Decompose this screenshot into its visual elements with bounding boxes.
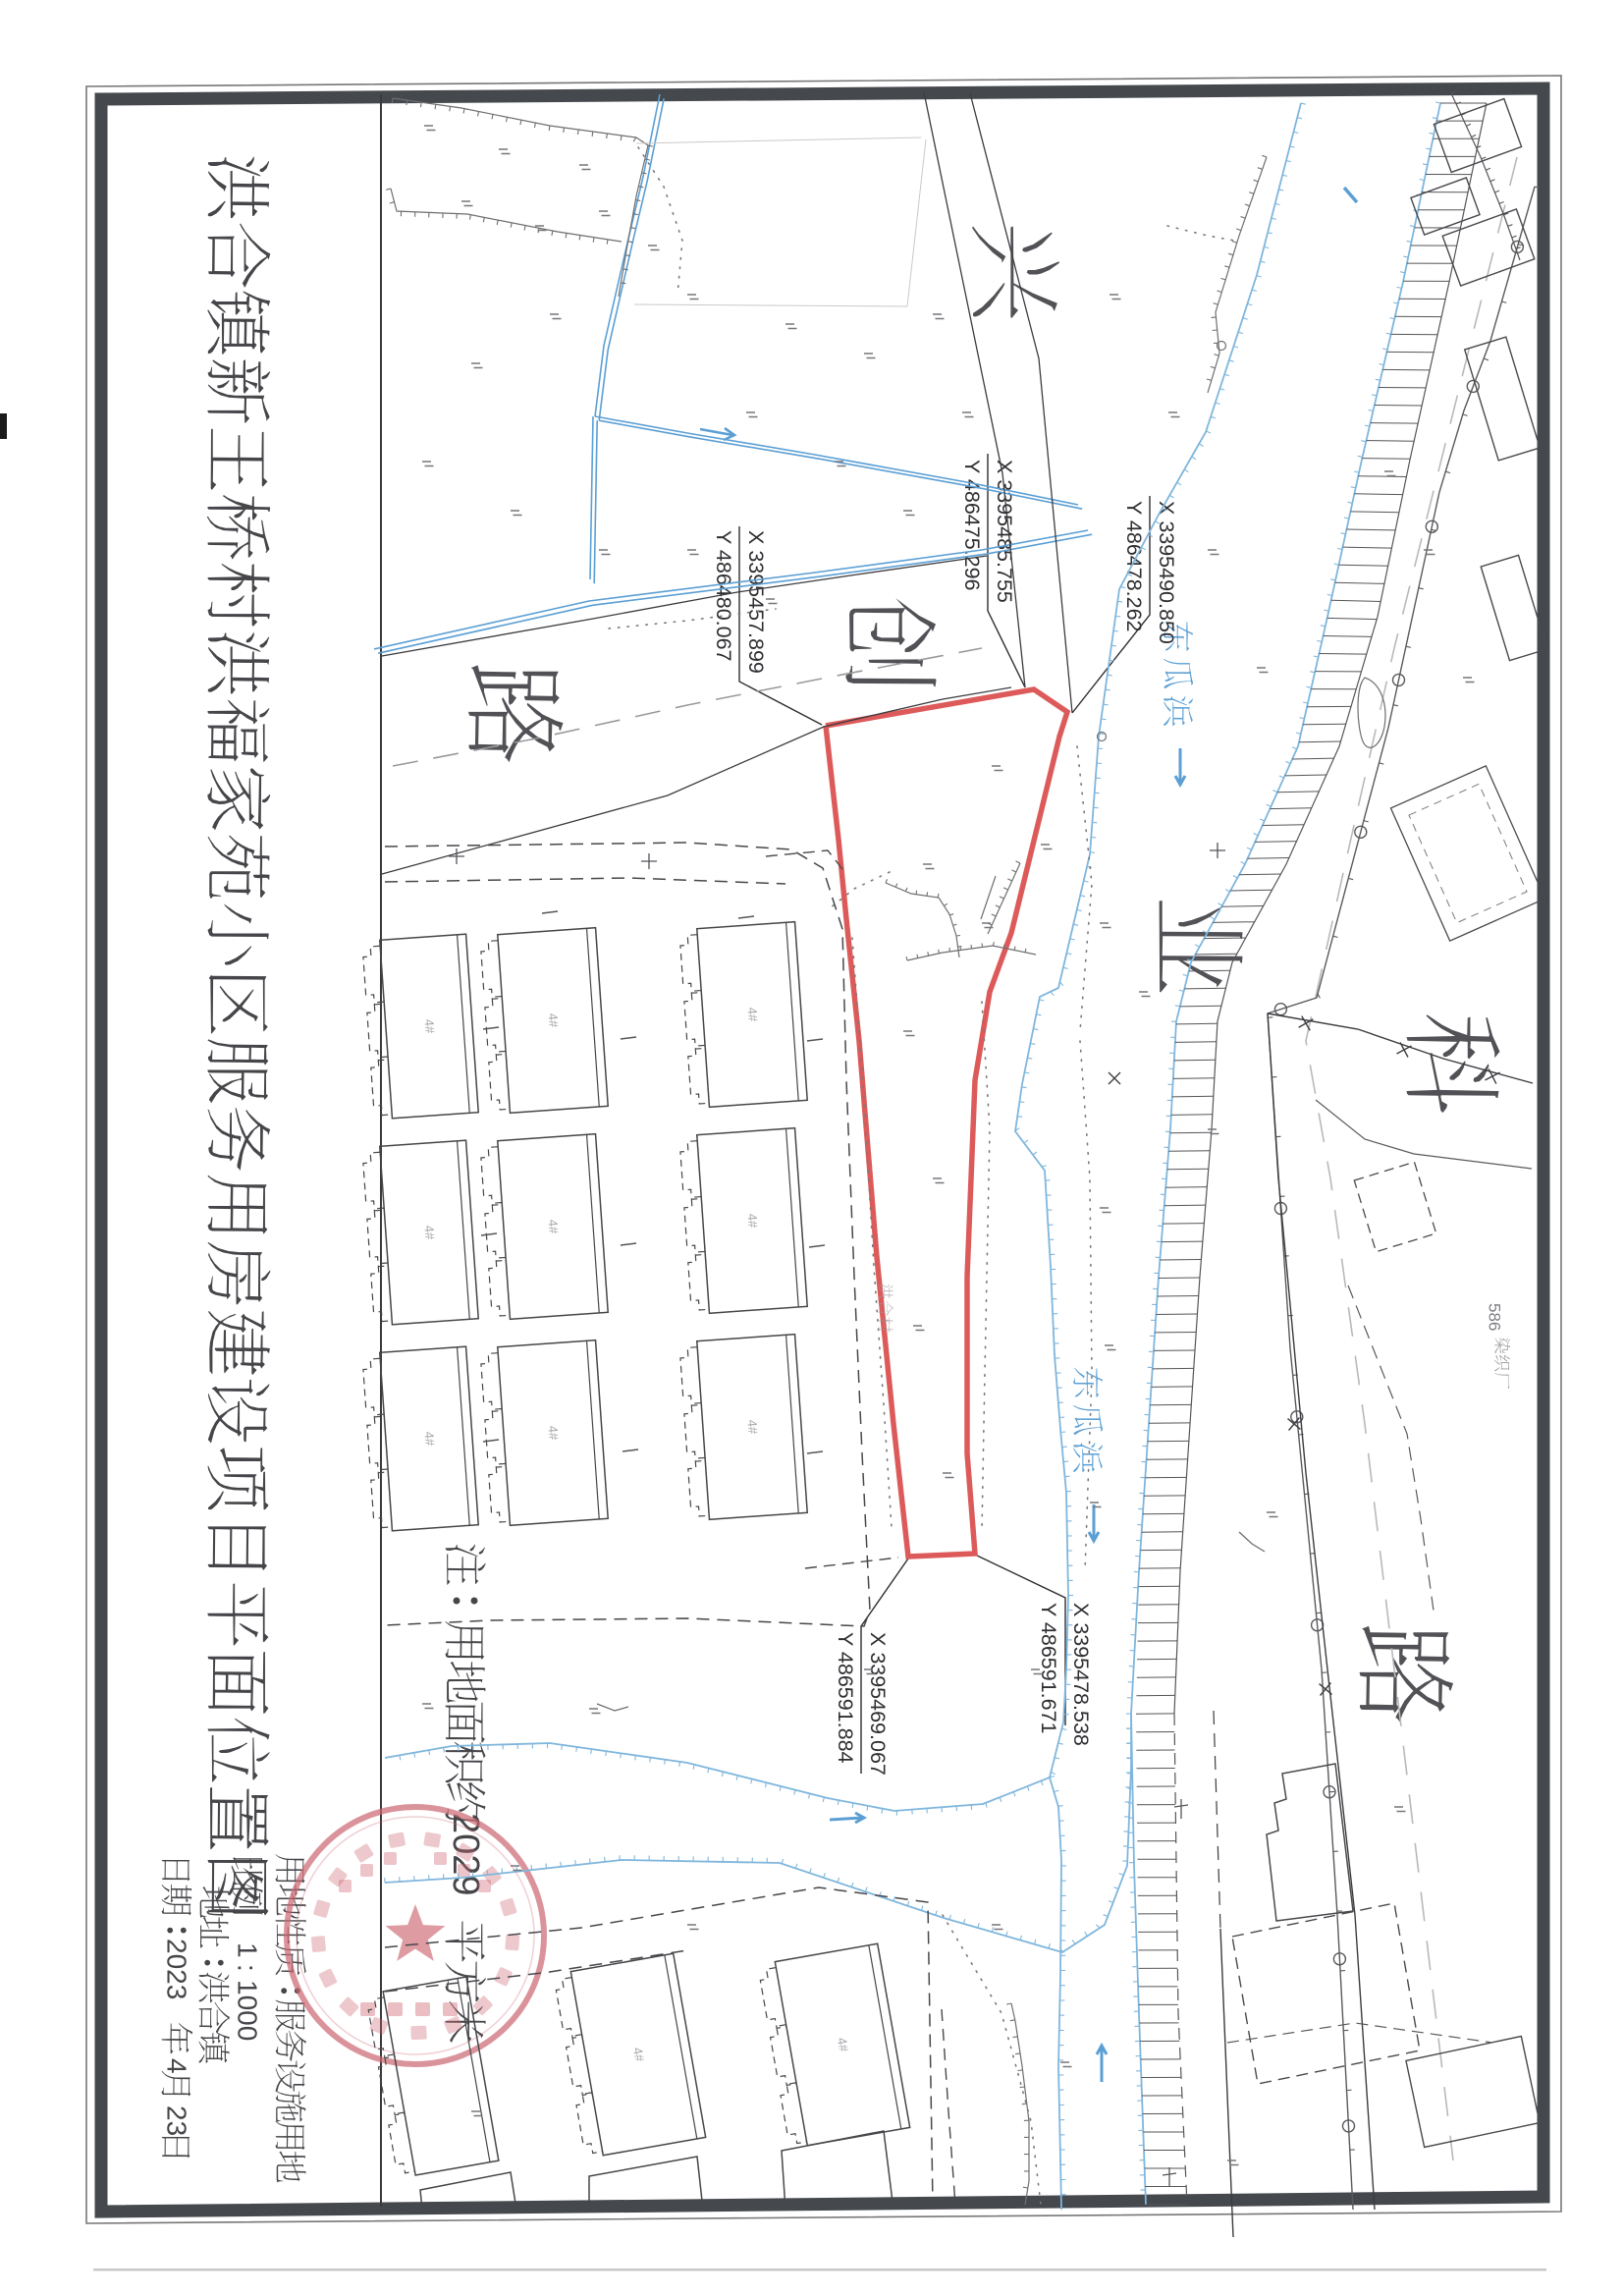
svg-text:586: 586	[1486, 1303, 1504, 1331]
svg-text:Y 486591.671: Y 486591.671	[1037, 1603, 1060, 1734]
svg-text:4: 4	[162, 2058, 192, 2074]
svg-text:Y 486591.884: Y 486591.884	[834, 1632, 857, 1764]
svg-text:2023: 2023	[162, 1939, 192, 1999]
svg-text:4#: 4#	[745, 1419, 761, 1435]
svg-text:4#: 4#	[422, 1431, 438, 1447]
svg-text:4#: 4#	[422, 1018, 438, 1034]
svg-text:23: 23	[162, 2105, 192, 2136]
svg-text:X 3395457.899: X 3395457.899	[744, 530, 768, 674]
svg-text:X 3395485.755: X 3395485.755	[993, 460, 1016, 603]
svg-text:X 3395469.067: X 3395469.067	[866, 1632, 890, 1776]
svg-text:4#: 4#	[546, 1219, 562, 1234]
svg-text:4#: 4#	[546, 1012, 562, 1028]
svg-text:1: 1	[233, 1942, 263, 1958]
svg-text:4#: 4#	[546, 1425, 562, 1441]
svg-text:Y 486475.296: Y 486475.296	[960, 460, 984, 591]
svg-text:4#: 4#	[422, 1225, 438, 1240]
svg-text:1000: 1000	[233, 1980, 263, 2041]
svg-text:4#: 4#	[745, 1007, 761, 1022]
svg-text:X 3395478.538: X 3395478.538	[1069, 1603, 1093, 1746]
svg-text:Y 486478.262: Y 486478.262	[1122, 501, 1146, 632]
svg-text::: :	[233, 1964, 263, 1972]
svg-text:4#: 4#	[745, 1213, 761, 1229]
